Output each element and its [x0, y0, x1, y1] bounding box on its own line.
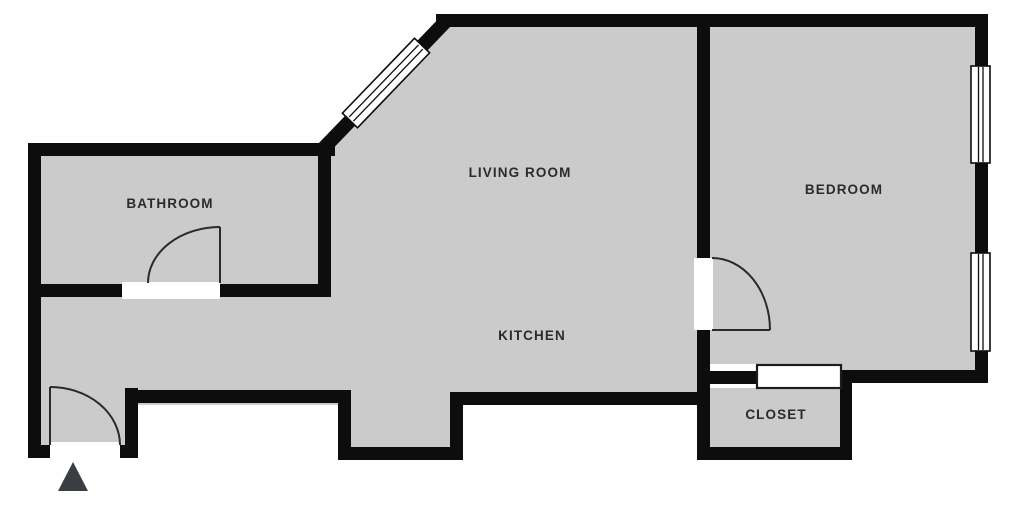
bedroom-floor [703, 14, 988, 383]
entrance-arrow-icon [58, 462, 88, 491]
kitchen-floor [28, 283, 710, 405]
bedroom-window-lower-icon [971, 253, 990, 351]
bathroom-top-wall [28, 143, 335, 156]
entry-door-opening [50, 442, 120, 460]
entry-bottom-wall-left [28, 445, 50, 458]
closet-label: CLOSET [745, 407, 806, 422]
left-outer-wall [28, 143, 41, 458]
living-room-floor [322, 20, 710, 300]
closet-door-panel [757, 365, 841, 388]
bathroom-floor [28, 143, 331, 298]
top-outer-wall [436, 14, 988, 27]
closet-bottom-wall [697, 447, 852, 460]
floor-plan: BATHROOM LIVING ROOM KITCHEN BEDROOM CLO… [0, 0, 1035, 517]
living-room-label: LIVING ROOM [469, 165, 572, 180]
kitchen-bottom-wall-right [450, 392, 710, 405]
kitchen-label: KITCHEN [498, 328, 566, 343]
kitchen-bottom-wall-left [125, 390, 348, 403]
bathroom-label: BATHROOM [126, 196, 213, 211]
bathroom-right-wall [318, 143, 331, 297]
bedroom-dividing-wall-upper [697, 20, 710, 258]
bedroom-label: BEDROOM [805, 182, 883, 197]
bedroom-door-opening [694, 258, 713, 330]
alcove-bottom-wall [338, 447, 463, 460]
bedroom-window-upper-icon [971, 66, 990, 163]
bathroom-door-opening [122, 282, 220, 299]
bedroom-dividing-wall-lower [697, 330, 710, 460]
